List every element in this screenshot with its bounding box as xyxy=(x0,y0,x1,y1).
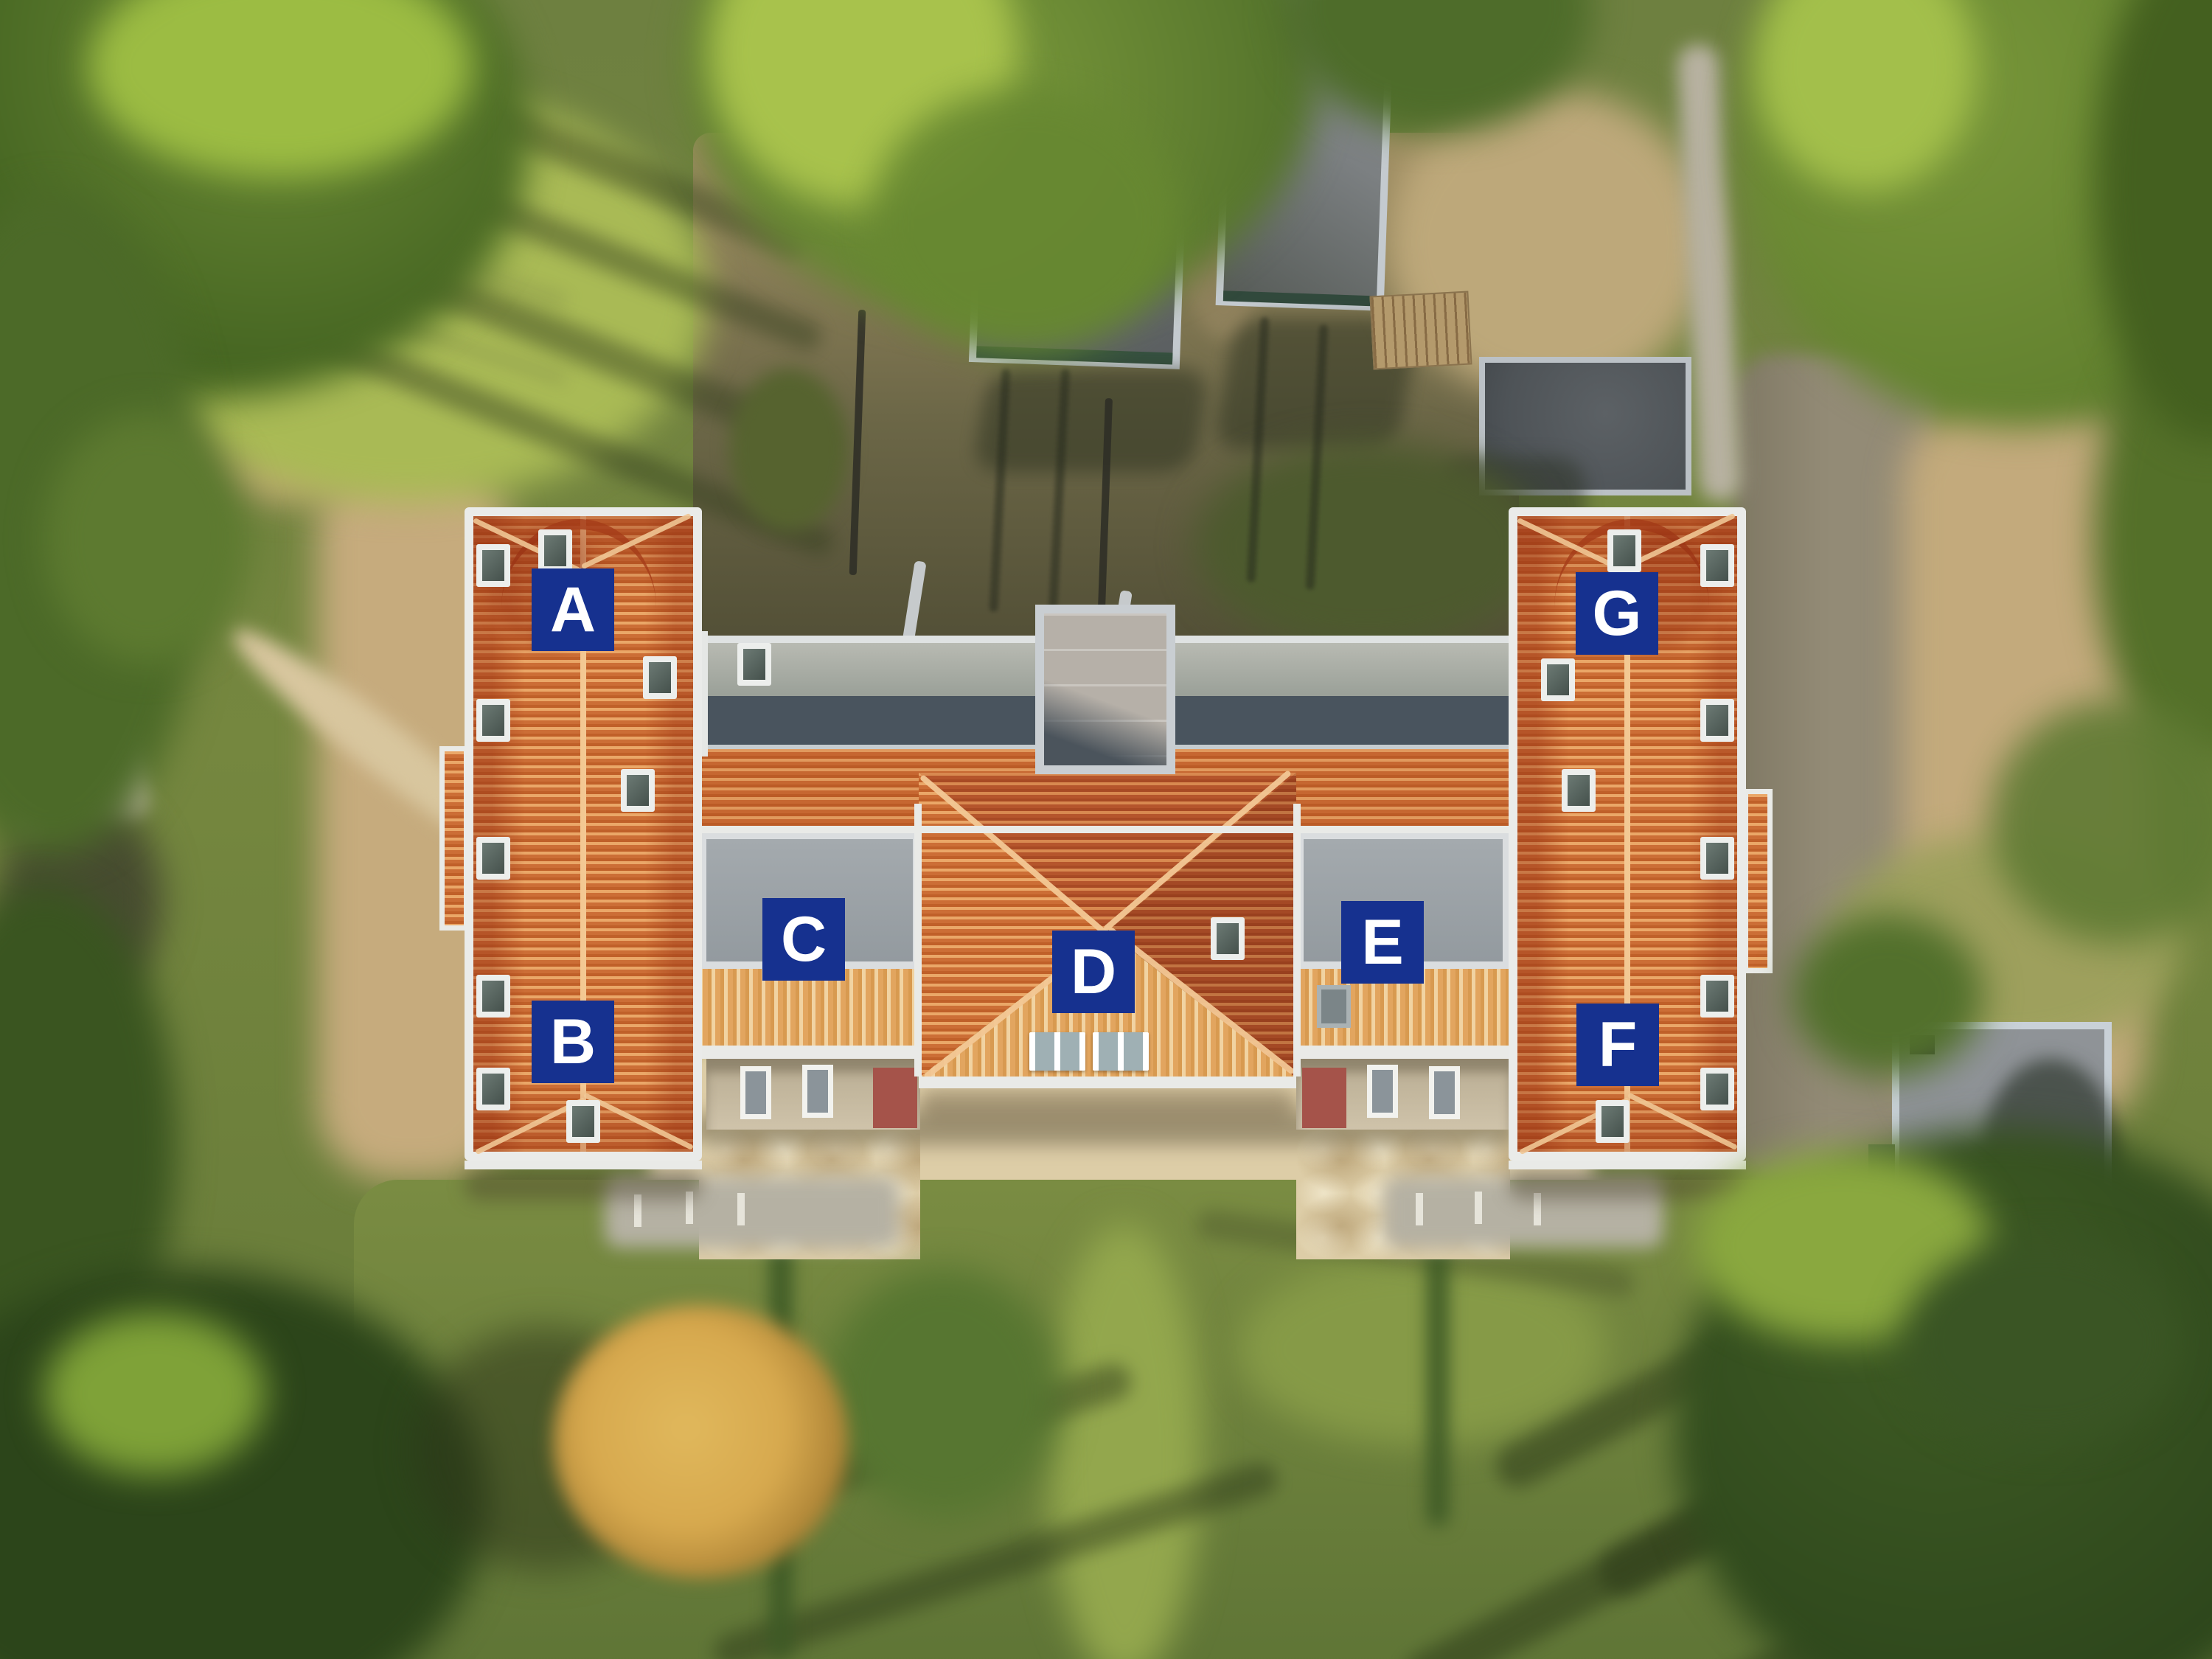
door xyxy=(740,1066,771,1119)
skylight-window xyxy=(1700,699,1734,742)
unit-marker-d: D xyxy=(1052,931,1135,1013)
skylight-window xyxy=(1700,1068,1734,1110)
skylight-window xyxy=(476,544,510,587)
tree-canopy xyxy=(1902,1239,2183,1445)
mow-lane xyxy=(1047,1224,1202,1659)
skylight-window xyxy=(1700,837,1734,880)
annex-roof xyxy=(1748,794,1767,968)
building-shadow xyxy=(1509,1171,1746,1200)
unit-c-facade xyxy=(706,1059,920,1130)
tree-canopy xyxy=(1792,914,1983,1077)
skylight-window xyxy=(1562,769,1596,812)
unit-marker-g: G xyxy=(1576,572,1658,655)
unit-marker-f: F xyxy=(1576,1004,1659,1086)
building-shadow xyxy=(465,1171,702,1200)
unit-marker-a: A xyxy=(532,568,614,651)
door xyxy=(1429,1066,1460,1119)
skylight-window xyxy=(538,529,572,572)
skylight-window xyxy=(476,1068,510,1110)
annex-roof xyxy=(445,751,464,925)
apron-stripe xyxy=(737,1193,745,1225)
skylight-window xyxy=(1700,975,1734,1018)
unit-marker-b: B xyxy=(532,1001,614,1083)
unit-marker-e: E xyxy=(1341,901,1424,984)
door xyxy=(1367,1065,1398,1118)
skylight-window xyxy=(621,769,655,812)
right-wing-annex xyxy=(1743,789,1773,973)
window-pair xyxy=(1029,1032,1085,1071)
skylight-window xyxy=(476,699,510,742)
skylight-window xyxy=(1607,529,1641,572)
central-raised-flat-roof xyxy=(1035,605,1175,774)
eaves xyxy=(919,1077,1296,1088)
tree-canopy xyxy=(826,1268,1062,1519)
eaves xyxy=(465,1161,702,1169)
building-shadow xyxy=(919,1090,1296,1119)
skylight-window xyxy=(1211,917,1245,960)
skylight-window xyxy=(1541,658,1575,701)
skylight-window xyxy=(566,1100,600,1143)
door xyxy=(802,1065,833,1118)
weed-patch xyxy=(1194,442,1541,649)
tree-canopy xyxy=(870,88,1180,354)
aerial-photo-scene: A B C D E F G xyxy=(0,0,2212,1659)
unit-e-facade xyxy=(1296,1059,1510,1130)
eaves xyxy=(1509,1161,1746,1169)
parapet xyxy=(914,804,922,1077)
skylight-window xyxy=(1596,1100,1630,1143)
parapet xyxy=(1293,804,1301,1077)
skylight-window xyxy=(1700,544,1734,587)
red-wall-panel xyxy=(1302,1068,1346,1128)
eaves xyxy=(699,1046,920,1059)
autumn-tree-canopy xyxy=(553,1305,848,1578)
unit-marker-c: C xyxy=(762,898,845,981)
tree-canopy xyxy=(44,413,251,664)
solar-panel xyxy=(1317,985,1351,1028)
tree-canopy-highlight xyxy=(44,1312,265,1475)
red-wall-panel xyxy=(873,1068,917,1128)
apron-stripe xyxy=(1475,1192,1482,1224)
skylight-window xyxy=(737,643,771,686)
wood-stack xyxy=(1369,291,1472,370)
window-pair xyxy=(1093,1032,1149,1071)
roofband-eave xyxy=(700,826,1512,833)
weed-patch xyxy=(730,369,848,531)
skylight-window xyxy=(476,837,510,880)
unit-d-roof xyxy=(919,773,1296,1078)
skylight-window xyxy=(476,975,510,1018)
apron-stripe xyxy=(1416,1193,1423,1225)
skylight-window xyxy=(643,656,677,699)
eaves xyxy=(1296,1046,1510,1059)
